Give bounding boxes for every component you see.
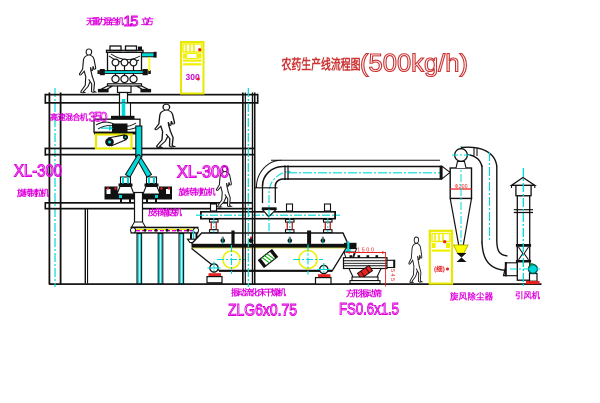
svg-text:振动流化床干燥机: 振动流化床干燥机 (231, 288, 287, 298)
svg-text:FS0.6x1.5: FS0.6x1.5 (339, 300, 399, 319)
svg-text:旋风除尘器: 旋风除尘器 (449, 292, 494, 302)
svg-text:350: 350 (89, 110, 108, 125)
svg-text:旋转制粒机: 旋转制粒机 (178, 187, 217, 197)
svg-text:1500: 1500 (357, 248, 374, 254)
svg-text:旋转制粒机: 旋转制粒机 (16, 188, 50, 198)
svg-text:300: 300 (186, 72, 200, 82)
svg-text:无重力混合机: 无重力混合机 (85, 16, 124, 27)
svg-text:(细): (细) (434, 264, 445, 273)
svg-text:1.5: 1.5 (124, 14, 139, 30)
svg-text:引风机: 引风机 (515, 291, 541, 301)
svg-text:(500kg/h): (500kg/h) (360, 50, 468, 78)
svg-text:农药生产线流程图: 农药生产线流程图 (281, 57, 361, 73)
svg-text:高速混合机: 高速混合机 (50, 112, 89, 122)
svg-text:XL-300: XL-300 (14, 161, 62, 181)
svg-text:XL-300: XL-300 (177, 162, 229, 182)
svg-text:ZLG6x0.75: ZLG6x0.75 (228, 301, 297, 320)
svg-text:545: 545 (389, 269, 395, 281)
svg-text:皮带输送机: 皮带输送机 (147, 208, 183, 218)
svg-text:方形振动筛: 方形振动筛 (346, 289, 383, 299)
svg-text:立方: 立方 (141, 16, 154, 27)
